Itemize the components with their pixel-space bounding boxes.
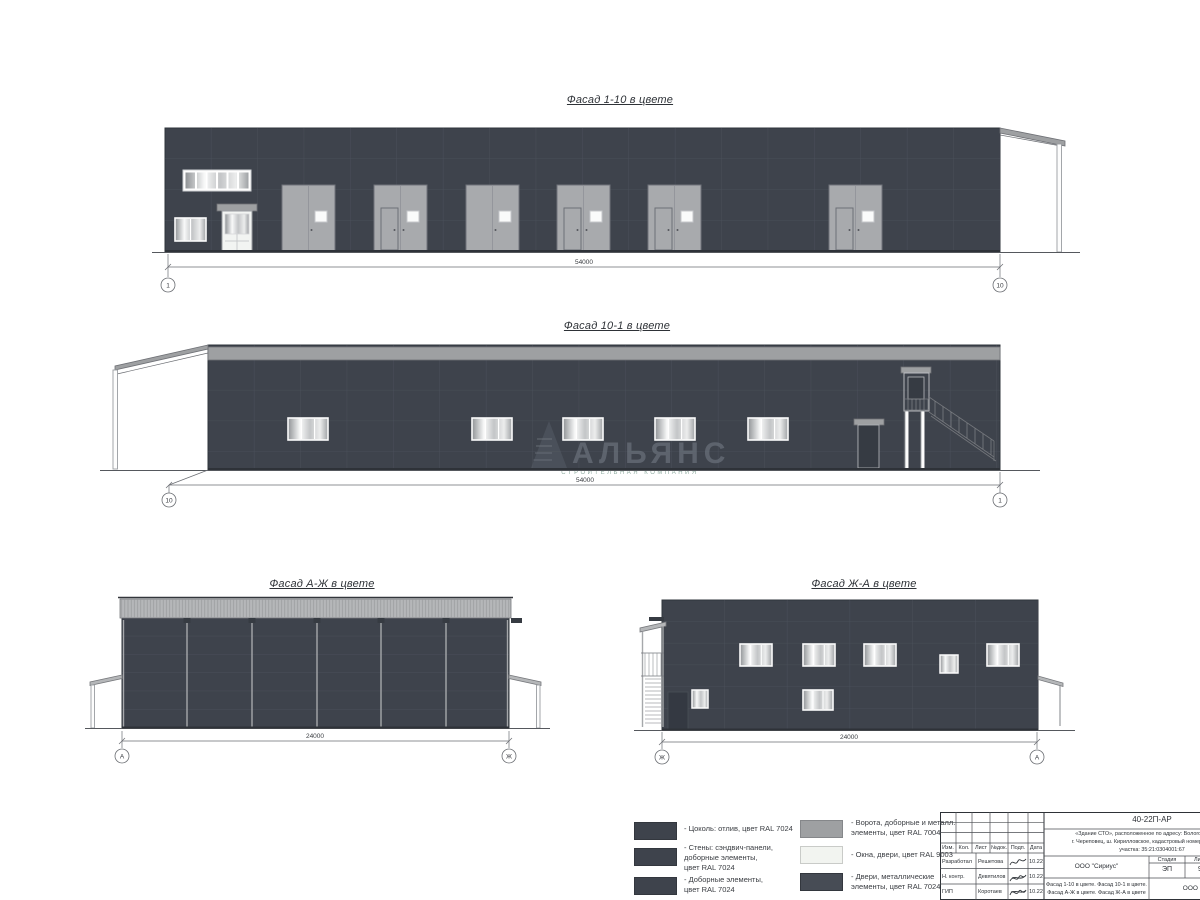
org-sirius: ООО "Сириус": [1044, 863, 1149, 870]
gate-1: [282, 185, 335, 252]
entrance-door: [217, 204, 257, 252]
window: [472, 418, 512, 440]
row-role: Разработал: [942, 859, 972, 865]
canopy-post: [1057, 144, 1062, 252]
row-date: 10.22: [1028, 889, 1044, 895]
row-role: Н. контр.: [942, 874, 965, 880]
axis-marker-left: 1: [161, 278, 175, 292]
legend-swatch-windows: [800, 846, 843, 864]
axis-marker-right: 10: [993, 278, 1007, 292]
dimension-value: 24000: [306, 733, 324, 740]
axis-marker-left: Ж: [655, 750, 669, 764]
svg-text:1: 1: [998, 498, 1002, 505]
dimension-value: 54000: [575, 259, 593, 266]
col-podp: Подп.: [1008, 845, 1028, 851]
entrance-canopy: [217, 204, 257, 211]
window: [288, 418, 328, 440]
gate-4: [557, 185, 610, 252]
col-izm: Изм.: [940, 845, 956, 851]
title-block: 40-22П-АР «Здание СТО», расположенное по…: [940, 812, 1200, 900]
dimension-value: 24000: [840, 734, 858, 741]
signature: [1009, 886, 1027, 899]
recessed-door: [668, 692, 688, 729]
axis-marker-right: А: [1030, 750, 1044, 764]
side-canopy-left: [90, 675, 122, 728]
axis-marker-left: А: [115, 749, 129, 763]
gate-3: [466, 185, 519, 252]
col-list: Лист: [972, 845, 990, 851]
window: [748, 418, 788, 440]
signature: [1009, 871, 1027, 884]
row-name: Решетова: [978, 859, 1003, 865]
dimension-value: 54000: [576, 477, 594, 484]
legend-label: - Окна, двери, цвет RAL 9003: [851, 850, 953, 860]
legend-swatch-plinth: [634, 822, 677, 840]
window: [803, 644, 835, 666]
gutter-bracket: [511, 618, 522, 623]
signature: [1009, 856, 1027, 869]
window-small: [692, 690, 708, 708]
sheet-title: Фасад 1-10 в цвете. Фасад 10-1 в цвете. …: [1044, 881, 1149, 897]
row-date: 10.22: [1028, 874, 1044, 880]
row-date: 10.22: [1028, 859, 1044, 865]
legend-swatch-trim: [634, 877, 677, 895]
legend-swatch-gates: [800, 820, 843, 838]
window: [987, 644, 1019, 666]
side-canopy-right: [1038, 676, 1063, 726]
upper-door: [908, 377, 924, 399]
svg-text:А: А: [1035, 755, 1040, 762]
gate-2: [374, 185, 427, 252]
parapet-band: [208, 347, 1000, 360]
small-window: [175, 218, 206, 241]
sheet-value: 9: [1185, 866, 1200, 873]
project-description: «Здание СТО», расположенное по адресу: В…: [1046, 831, 1200, 854]
svg-text:Ж: Ж: [506, 754, 512, 761]
stage-value: ЭП: [1149, 866, 1185, 873]
svg-text:10: 10: [996, 283, 1004, 290]
ribbon-window: [183, 170, 251, 191]
window: [864, 644, 896, 666]
col-kol: Кол.: [956, 845, 972, 851]
facade-1-10-drawing: 54000 1 10: [140, 95, 1100, 300]
stage-label: Стадия: [1149, 857, 1185, 863]
legend-swatch-doors: [800, 873, 843, 891]
sheet-label: Лист: [1185, 857, 1200, 863]
side-canopy-left: [113, 345, 208, 469]
row-role: ГИП: [942, 889, 953, 895]
gate-5: [648, 185, 701, 252]
legend-label: - Стены: сэндвич-панели, доборные элемен…: [684, 843, 773, 873]
watermark-name: АЛЬЯНС: [572, 437, 730, 470]
window: [740, 644, 772, 666]
window: [803, 690, 833, 710]
facade-a-zh-drawing: 24000 А Ж: [80, 575, 560, 775]
canopy-post: [113, 370, 118, 469]
facade-10-1-title: Фасад 10-1 в цвете: [517, 320, 717, 332]
org-alliance: ООО "Альянс": [1149, 885, 1200, 892]
window-small: [940, 655, 958, 673]
axis-marker-left: 10: [162, 493, 176, 507]
axis-marker-right: 1: [993, 493, 1007, 507]
doc-number: 40-22П-АР: [1044, 815, 1200, 824]
row-name: Коротаев: [978, 889, 1002, 895]
facade-10-1-drawing: АЛЬЯНС СТРОИТЕЛЬНАЯ КОМПАНИЯ: [100, 335, 1100, 510]
svg-text:10: 10: [165, 498, 173, 505]
facade-zh-a-drawing: 24000 Ж А: [620, 575, 1100, 775]
svg-text:1: 1: [166, 283, 170, 290]
legend-label: - Двери, металлические элементы, цвет RA…: [851, 872, 940, 892]
stair-stringer: [645, 679, 661, 723]
gate-6: [829, 185, 882, 252]
door-canopy: [901, 367, 931, 373]
drawing-sheet: Фасад 1-10 в цвете Фасад 10-1 в цвете Фа…: [0, 0, 1200, 900]
svg-text:А: А: [120, 754, 125, 761]
side-canopy-right: [509, 675, 541, 728]
col-ndok: №док.: [990, 845, 1008, 851]
svg-text:Ж: Ж: [659, 755, 665, 762]
legend-label: - Цоколь: отлив, цвет RAL 7024: [684, 824, 793, 834]
legend-swatch-walls: [634, 848, 677, 866]
side-canopy-right: [1000, 128, 1065, 252]
door-canopy: [854, 419, 884, 425]
lower-door: [858, 425, 879, 468]
row-name: Девятилов: [978, 874, 1005, 880]
col-data: Дата: [1028, 845, 1044, 851]
legend-label: - Доборные элементы, цвет RAL 7024: [684, 875, 763, 895]
axis-marker-right: Ж: [502, 749, 516, 763]
